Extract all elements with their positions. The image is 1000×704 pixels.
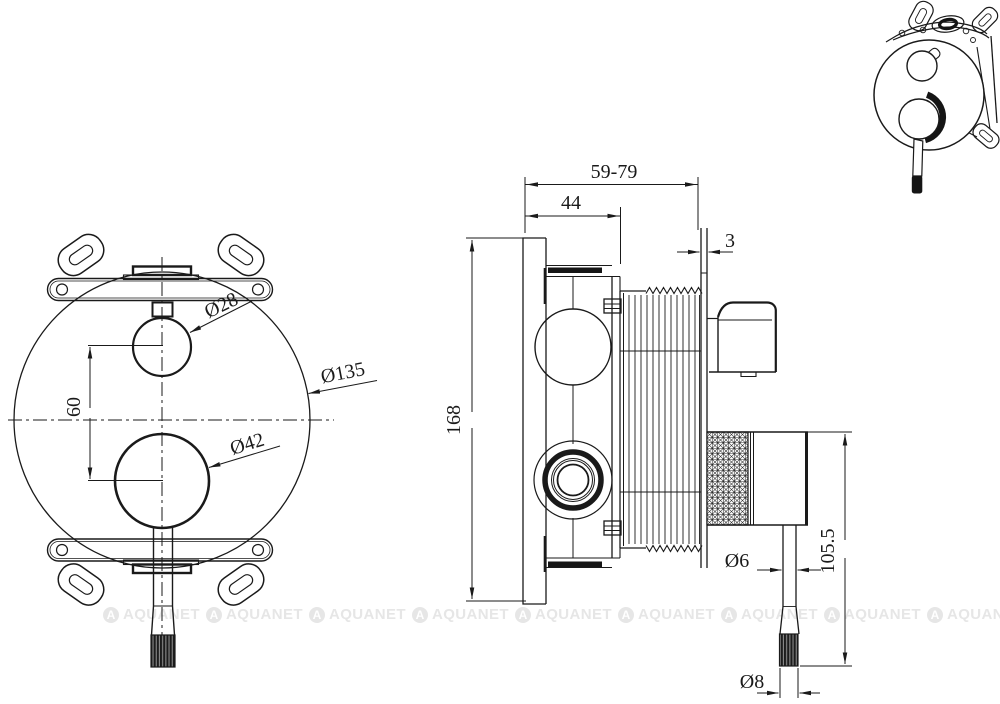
dimension-plate: Ø135	[309, 358, 378, 393]
outlet-port-circles	[534, 441, 612, 519]
dim-rod-diameter-label: Ø6	[725, 550, 749, 572]
dim-center-spacing-label: 60	[63, 397, 85, 417]
dimension-rod-diameter: Ø6	[725, 550, 821, 572]
lever-handle-front	[151, 528, 175, 667]
dimension-height: 168	[443, 238, 545, 601]
mounting-ear-icon	[53, 229, 110, 281]
dimension-small-knob: Ø28	[190, 288, 252, 332]
handle-knurled-tip	[151, 635, 175, 667]
bellows-cover	[620, 288, 702, 552]
handle-knurled-tip	[780, 634, 799, 666]
mounting-bracket-top	[48, 229, 273, 301]
dim-depth-range-label: 59-79	[591, 161, 638, 183]
technical-drawing: 60 Ø28 Ø42 Ø135	[0, 0, 1000, 704]
dimension-plate-thickness: 3	[677, 230, 735, 252]
dimension-large-knob: Ø42	[209, 429, 280, 468]
front-view-drawing: 60 Ø28 Ø42 Ø135	[8, 229, 377, 667]
mounting-ear-icon	[213, 229, 270, 281]
dim-tip-diameter-label: Ø8	[740, 671, 764, 693]
sketch-large-knob	[899, 99, 939, 139]
wall-plate	[701, 228, 707, 568]
valve-body-side	[523, 238, 621, 604]
sketch-handle-tip	[912, 176, 923, 194]
sketch-handle-rod	[913, 139, 923, 176]
diverter-knob-side	[707, 303, 776, 377]
dim-body-depth-label: 44	[561, 192, 581, 214]
sketch-inlet-oval	[931, 14, 965, 34]
dimension-depth-range: 59-79	[525, 161, 698, 233]
dim-small-knob-label: Ø28	[201, 288, 242, 323]
side-view-drawing: 168 59-79 44 3 Ø6	[443, 161, 852, 698]
sketch-small-knob	[907, 51, 937, 81]
lever-handle-side	[707, 432, 808, 666]
dim-plate-thickness-label: 3	[725, 230, 735, 252]
knurled-grip-ring	[707, 432, 748, 525]
dim-handle-length-label: 105.5	[817, 529, 839, 574]
dimension-body-depth: 44	[525, 192, 621, 264]
drawing-page: { "drawing": { "background": "#ffffff", …	[0, 0, 1000, 704]
dim-large-knob-label: Ø42	[228, 429, 267, 460]
dim-height-label: 168	[443, 405, 465, 435]
dimension-tip-diameter: Ø8	[740, 668, 820, 698]
dimension-center-spacing: 60	[63, 346, 163, 481]
mounting-bracket-bottom	[48, 539, 273, 611]
product-thumbnail-sketch	[874, 0, 1000, 193]
